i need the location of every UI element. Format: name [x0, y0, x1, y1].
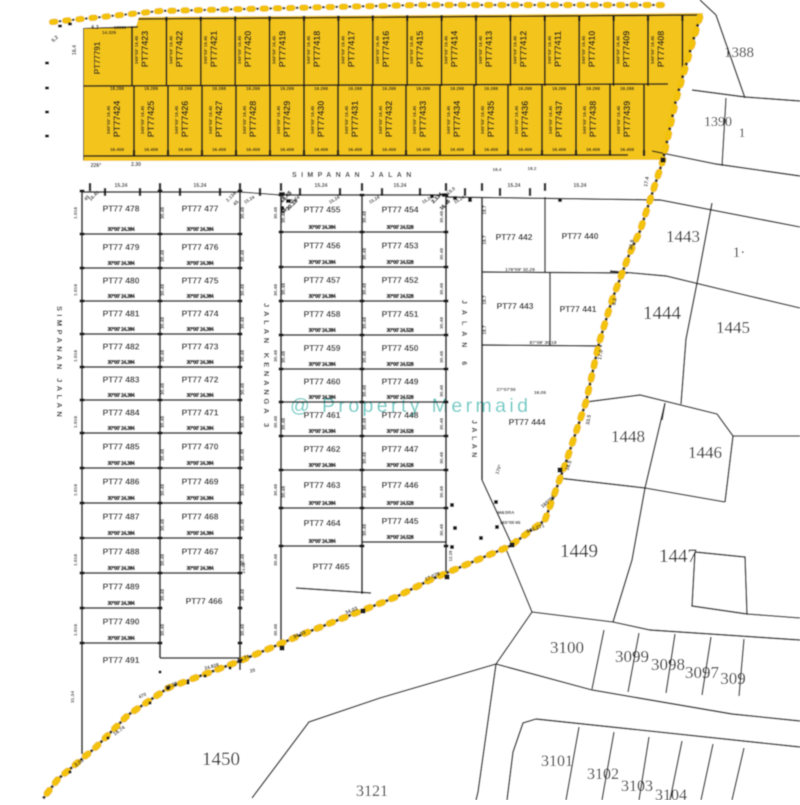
- svg-text:3103: 3103: [621, 778, 653, 795]
- svg-text:16.459: 16.459: [450, 147, 464, 152]
- svg-text:PT77 450: PT77 450: [382, 343, 419, 353]
- svg-text:16.459: 16.459: [314, 147, 328, 152]
- svg-text:PT77 473: PT77 473: [182, 342, 219, 352]
- svg-text:30.48: 30.48: [362, 248, 368, 260]
- svg-text:349°59' 16.45: 349°59' 16.45: [616, 35, 621, 64]
- svg-text:16.459: 16.459: [382, 147, 396, 152]
- svg-text:18.288: 18.288: [348, 86, 362, 91]
- svg-text:PT77436: PT77436: [520, 101, 530, 138]
- svg-text:PT77426: PT77426: [180, 101, 190, 138]
- svg-text:30.48: 30.48: [240, 449, 246, 461]
- svg-text:PT77411: PT77411: [553, 31, 563, 67]
- svg-text:PT77 476: PT77 476: [182, 242, 219, 252]
- svg-text:SIMPANAN JALAN: SIMPANAN JALAN: [292, 172, 416, 179]
- svg-text:30.48: 30.48: [240, 250, 246, 262]
- svg-text:18.288: 18.288: [450, 86, 464, 91]
- svg-text:30.48: 30.48: [160, 449, 166, 461]
- svg-text:30°00' 24.384: 30°00' 24.384: [107, 227, 135, 233]
- svg-text:30°00' 24.384: 30°00' 24.384: [186, 566, 214, 572]
- svg-text:30.48: 30.48: [160, 554, 166, 566]
- svg-text:PT77 465: PT77 465: [313, 562, 350, 572]
- svg-text:1447: 1447: [659, 546, 697, 567]
- svg-text:18.288: 18.288: [620, 86, 634, 91]
- svg-text:349°59' 16.45: 349°59' 16.45: [174, 105, 179, 134]
- svg-text:16.459: 16.459: [518, 147, 532, 152]
- svg-text:16.459: 16.459: [416, 147, 430, 152]
- svg-text:PT77 489: PT77 489: [103, 582, 140, 592]
- svg-text:349°59' 16.45: 349°59' 16.45: [344, 105, 349, 134]
- svg-text:15.24: 15.24: [394, 183, 407, 189]
- svg-text:PT77428: PT77428: [248, 101, 258, 138]
- svg-text:30.48: 30.48: [273, 284, 279, 296]
- svg-text:18.288: 18.288: [212, 86, 226, 91]
- svg-text:16.05: 16.05: [534, 390, 546, 396]
- svg-text:30.48: 30.48: [160, 284, 166, 296]
- svg-text:1.016: 1.016: [73, 484, 79, 496]
- svg-text:349°59' 16.45: 349°59' 16.45: [650, 35, 655, 64]
- svg-text:30.48: 30.48: [281, 351, 287, 363]
- svg-text:30.48: 30.48: [160, 519, 166, 531]
- svg-text:30.48: 30.48: [439, 351, 445, 363]
- svg-text:18.288: 18.288: [144, 86, 158, 91]
- svg-text:30.48: 30.48: [362, 452, 368, 464]
- svg-text:1446: 1446: [688, 443, 722, 462]
- svg-text:30.48: 30.48: [439, 418, 445, 430]
- svg-text:349°59' 16.45: 349°59' 16.45: [514, 105, 519, 134]
- svg-text:PT77419: PT77419: [278, 31, 288, 68]
- svg-text:3097: 3097: [685, 663, 720, 682]
- svg-text:PT77 478: PT77 478: [103, 204, 140, 214]
- svg-text:PT77412: PT77412: [518, 31, 528, 68]
- svg-text:18.288: 18.288: [518, 86, 532, 91]
- svg-text:30°00' 24.384: 30°00' 24.384: [107, 294, 135, 300]
- svg-text:30°00' 24.384: 30°00' 24.384: [107, 461, 135, 467]
- svg-text:30°00' 24.528: 30°00' 24.528: [386, 225, 414, 231]
- svg-text:PT77 463: PT77 463: [304, 480, 341, 490]
- svg-text:349°59' 16.45: 349°59' 16.45: [582, 105, 587, 134]
- svg-text:30.48: 30.48: [273, 350, 279, 362]
- svg-text:27°07'30: 27°07'30: [496, 387, 515, 393]
- svg-text:PT77 451: PT77 451: [382, 309, 419, 319]
- svg-text:PT77429: PT77429: [282, 101, 292, 138]
- svg-text:30.48: 30.48: [160, 589, 166, 601]
- svg-text:30.48: 30.48: [439, 385, 445, 397]
- svg-text:16.459: 16.459: [484, 147, 498, 152]
- svg-text:1.016: 1.016: [73, 284, 79, 296]
- svg-text:PT77 449: PT77 449: [382, 377, 419, 387]
- svg-text:18.2: 18.2: [528, 166, 537, 171]
- svg-text:PT77418: PT77418: [312, 31, 322, 68]
- svg-text:16.459: 16.459: [280, 147, 294, 152]
- svg-text:15.24: 15.24: [115, 183, 128, 189]
- svg-text:PT77 459: PT77 459: [304, 343, 341, 353]
- svg-text:PT77 461: PT77 461: [304, 410, 341, 420]
- svg-text:349°59' 16.45: 349°59' 16.45: [140, 105, 145, 134]
- svg-text:87°09' 30.18: 87°09' 30.18: [529, 340, 556, 346]
- svg-text:PT77791: PT77791: [93, 41, 102, 74]
- svg-text:349°59' 16.45: 349°59' 16.45: [444, 35, 449, 64]
- svg-text:PT77 452: PT77 452: [382, 275, 419, 285]
- svg-text:PT77410: PT77410: [587, 31, 597, 68]
- svg-text:15.24: 15.24: [315, 183, 328, 189]
- svg-text:30.48: 30.48: [439, 452, 445, 464]
- svg-text:30.48: 30.48: [240, 317, 246, 329]
- svg-text:PT77 491: PT77 491: [103, 655, 140, 665]
- svg-text:16.459: 16.459: [178, 147, 192, 152]
- svg-text:PT77 474: PT77 474: [182, 309, 219, 319]
- svg-text:PT77 447: PT77 447: [382, 444, 419, 454]
- svg-text:16.459: 16.459: [110, 147, 124, 152]
- svg-text:PT77425: PT77425: [146, 101, 156, 138]
- svg-text:18.288: 18.288: [246, 86, 260, 91]
- svg-text:349°59' 16.45: 349°59' 16.45: [272, 35, 277, 64]
- svg-text:349°59' 16.45: 349°59' 16.45: [378, 105, 383, 134]
- svg-text:309: 309: [720, 669, 746, 688]
- svg-text:1·: 1·: [733, 245, 746, 261]
- svg-text:1388: 1388: [724, 45, 754, 61]
- svg-text:18.7: 18.7: [482, 295, 488, 305]
- svg-text:30°00' 24.528: 30°00' 24.528: [386, 463, 414, 469]
- svg-text:30°00' 24.384: 30°00' 24.384: [107, 601, 135, 607]
- svg-text:30.48: 30.48: [240, 624, 246, 636]
- svg-text:18.288: 18.288: [416, 86, 430, 91]
- svg-text:PT77 466: PT77 466: [186, 596, 223, 606]
- svg-text:349°59' 16.45: 349°59' 16.45: [547, 35, 552, 64]
- svg-text:3100: 3100: [550, 638, 584, 657]
- svg-text:30°00' 24.528: 30°00' 24.528: [386, 501, 414, 507]
- svg-text:30°00' 24.528: 30°00' 24.528: [386, 260, 414, 266]
- svg-text:30°00' 24.384: 30°00' 24.384: [107, 531, 135, 537]
- svg-text:3098: 3098: [651, 655, 685, 674]
- svg-text:1390: 1390: [704, 115, 732, 130]
- svg-text:30.48: 30.48: [273, 554, 279, 566]
- svg-text:30°00' 24.384: 30°00' 24.384: [186, 393, 214, 399]
- svg-text:PT77 475: PT77 475: [182, 276, 219, 286]
- svg-text:PT77 485: PT77 485: [103, 442, 140, 452]
- svg-text:349°59' 16.45: 349°59' 16.45: [616, 105, 621, 134]
- svg-text:PT77433: PT77433: [418, 101, 428, 138]
- svg-text:30°00' 24.528: 30°00' 24.528: [386, 429, 414, 435]
- svg-text:PT77 490: PT77 490: [103, 617, 140, 627]
- svg-text:30.48: 30.48: [160, 350, 166, 362]
- svg-text:PT77414: PT77414: [450, 31, 460, 68]
- svg-text:349°59' 16.45: 349°59' 16.45: [203, 35, 208, 64]
- svg-text:30°00' 24.384: 30°00' 24.384: [107, 327, 135, 333]
- svg-text:16.4: 16.4: [72, 45, 78, 55]
- svg-text:30.48: 30.48: [362, 351, 368, 363]
- svg-text:PT77413: PT77413: [484, 31, 494, 68]
- svg-text:PT77 457: PT77 457: [304, 275, 341, 285]
- svg-text:30.48: 30.48: [362, 418, 368, 430]
- svg-text:PT77 470: PT77 470: [182, 442, 219, 452]
- svg-text:30.48: 30.48: [160, 317, 166, 329]
- svg-text:PT77439: PT77439: [622, 101, 632, 138]
- svg-text:30°00' 24.384: 30°00' 24.384: [186, 496, 214, 502]
- svg-text:30°00' 24.384: 30°00' 24.384: [107, 496, 135, 502]
- svg-text:15.24: 15.24: [508, 183, 521, 189]
- svg-text:16.459: 16.459: [212, 147, 226, 152]
- svg-text:18.7: 18.7: [482, 235, 488, 245]
- svg-text:30.48: 30.48: [160, 484, 166, 496]
- svg-text:30.48: 30.48: [439, 211, 445, 223]
- svg-text:PT77437: PT77437: [554, 101, 564, 138]
- svg-text:30.48: 30.48: [240, 589, 246, 601]
- svg-text:PT77415: PT77415: [415, 31, 425, 68]
- svg-text:PT77420: PT77420: [243, 31, 253, 68]
- svg-text:349°59' 16.45: 349°59' 16.45: [478, 35, 483, 64]
- svg-text:30.48: 30.48: [160, 624, 166, 636]
- svg-text:1443: 1443: [666, 227, 700, 246]
- svg-text:30.48: 30.48: [362, 385, 368, 397]
- svg-text:PT77416: PT77416: [381, 31, 391, 68]
- svg-text:3121: 3121: [356, 783, 388, 800]
- svg-text:18.288: 18.288: [110, 86, 124, 91]
- svg-text:PT77 484: PT77 484: [103, 408, 140, 418]
- svg-text:3099: 3099: [615, 647, 649, 666]
- svg-text:30.48: 30.48: [273, 624, 279, 636]
- svg-text:30°00' 24.528: 30°00' 24.528: [386, 535, 414, 541]
- svg-text:30.48: 30.48: [362, 211, 368, 223]
- svg-text:30°00' 24.384: 30°00' 24.384: [107, 566, 135, 572]
- svg-text:30°00' 24.384: 30°00' 24.384: [308, 328, 336, 334]
- svg-text:M&SRA: M&SRA: [498, 510, 516, 515]
- svg-text:PT77435: PT77435: [486, 101, 496, 138]
- svg-text:16.4: 16.4: [493, 167, 502, 172]
- svg-text:30.48: 30.48: [273, 484, 279, 496]
- svg-text:30°00' 24.384: 30°00' 24.384: [186, 461, 214, 467]
- svg-text:PT77 454: PT77 454: [382, 205, 419, 215]
- svg-text:18.288: 18.288: [178, 86, 192, 91]
- svg-text:30°00' 24.384: 30°00' 24.384: [186, 294, 214, 300]
- svg-text:30°00' 24.384: 30°00' 24.384: [186, 531, 214, 537]
- svg-text:349°59' 16.45: 349°59' 16.45: [512, 35, 517, 64]
- svg-text:PT77 440: PT77 440: [562, 231, 599, 241]
- svg-text:18.288: 18.288: [586, 86, 600, 91]
- svg-text:PT77 477: PT77 477: [182, 204, 219, 214]
- svg-text:PT77 481: PT77 481: [103, 309, 140, 319]
- svg-text:PT77 487: PT77 487: [103, 512, 140, 522]
- svg-text:PT77 472: PT77 472: [182, 375, 219, 385]
- svg-text:PT77 443: PT77 443: [497, 301, 534, 311]
- svg-text:15.24: 15.24: [194, 183, 207, 189]
- svg-text:1.016: 1.016: [73, 554, 79, 566]
- svg-text:30°00' 24.384: 30°00' 24.384: [308, 395, 336, 401]
- svg-text:PT77 448: PT77 448: [382, 410, 419, 420]
- svg-text:349°59' 16.45: 349°59' 16.45: [276, 105, 281, 134]
- svg-text:PT77417: PT77417: [346, 31, 356, 68]
- svg-text:30.48: 30.48: [439, 486, 445, 498]
- svg-text:349°59' 16.45: 349°59' 16.45: [237, 35, 242, 64]
- svg-text:PT77427: PT77427: [214, 101, 224, 138]
- svg-text:30.48: 30.48: [160, 383, 166, 395]
- svg-text:30°00' 24.528: 30°00' 24.528: [386, 294, 414, 300]
- svg-text:349°59' 16.45: 349°59' 16.45: [208, 105, 213, 134]
- svg-text:15.24: 15.24: [574, 183, 587, 189]
- svg-text:PT77421: PT77421: [209, 31, 219, 68]
- svg-text:30.48: 30.48: [281, 486, 287, 498]
- svg-text:24.03: 24.03: [241, 562, 246, 574]
- svg-text:PT77 442: PT77 442: [496, 232, 533, 242]
- svg-text:6.2: 6.2: [91, 25, 98, 31]
- svg-text:PT77 444: PT77 444: [509, 417, 546, 427]
- svg-text:30°00' 24.528: 30°00' 24.528: [386, 395, 414, 401]
- svg-text:349°59' 16.45: 349°59' 16.45: [106, 105, 111, 134]
- svg-text:16.459: 16.459: [348, 147, 362, 152]
- svg-text:1448: 1448: [611, 427, 645, 446]
- svg-text:30.48: 30.48: [240, 207, 246, 219]
- svg-text:1450: 1450: [202, 749, 240, 770]
- svg-text:16.459: 16.459: [620, 147, 634, 152]
- svg-text:30°00' 24.528: 30°00' 24.528: [386, 362, 414, 368]
- svg-text:PT77423: PT77423: [140, 31, 150, 68]
- svg-text:PT77 460: PT77 460: [304, 377, 341, 387]
- svg-text:1: 1: [739, 125, 746, 140]
- svg-text:30°00' 24.384: 30°00' 24.384: [107, 261, 135, 267]
- svg-text:16.459: 16.459: [144, 147, 158, 152]
- svg-text:349°59' 16.45: 349°59' 16.45: [446, 105, 451, 134]
- svg-text:PT77424: PT77424: [112, 101, 122, 138]
- svg-text:30.48: 30.48: [160, 207, 166, 219]
- svg-text:30°00' 24.384: 30°00' 24.384: [308, 294, 336, 300]
- svg-text:349°59' 16.45: 349°59' 16.45: [168, 35, 173, 64]
- svg-text:JALAN: JALAN: [470, 420, 477, 461]
- svg-text:30.48: 30.48: [160, 250, 166, 262]
- svg-text:30°00' 24.384: 30°00' 24.384: [186, 426, 214, 432]
- svg-text:30.48: 30.48: [362, 524, 368, 536]
- svg-text:16.459: 16.459: [552, 147, 566, 152]
- svg-text:30.48: 30.48: [240, 284, 246, 296]
- svg-text:30°00' 24.384: 30°00' 24.384: [107, 426, 135, 432]
- svg-text:1.016: 1.016: [73, 207, 79, 219]
- svg-text:349°59' 16.45: 349°59' 16.45: [581, 35, 586, 64]
- svg-text:PT77438: PT77438: [588, 101, 598, 138]
- svg-text:PT77 458: PT77 458: [304, 309, 341, 319]
- svg-text:PT77 469: PT77 469: [182, 477, 219, 487]
- svg-text:30°00' 24.528: 30°00' 24.528: [386, 328, 414, 334]
- svg-text:PT77 464: PT77 464: [304, 518, 341, 528]
- svg-text:PT77 455: PT77 455: [304, 205, 341, 215]
- svg-text:3104: 3104: [655, 787, 687, 800]
- svg-text:3101: 3101: [541, 753, 573, 770]
- svg-text:349°59' 16.45: 349°59' 16.45: [409, 35, 414, 64]
- svg-text:31.34: 31.34: [70, 691, 76, 703]
- svg-text:PT77 488: PT77 488: [103, 547, 140, 557]
- svg-text:30°00' 24.384: 30°00' 24.384: [308, 539, 336, 545]
- svg-text:349°59' 16.45: 349°59' 16.45: [412, 105, 417, 134]
- svg-text:1.016: 1.016: [73, 416, 79, 428]
- svg-text:PT77 453: PT77 453: [382, 241, 419, 251]
- svg-text:PT77 467: PT77 467: [182, 547, 219, 557]
- svg-text:30°00' 24.384: 30°00' 24.384: [107, 360, 135, 366]
- svg-text:226°: 226°: [91, 163, 102, 169]
- svg-text:30.48: 30.48: [439, 524, 445, 536]
- svg-text:JALAN 6: JALAN 6: [460, 300, 467, 371]
- svg-text:30.48: 30.48: [439, 317, 445, 329]
- svg-text:349°59' 16.45: 349°59' 16.45: [310, 105, 315, 134]
- svg-text:PT77 486: PT77 486: [103, 477, 140, 487]
- svg-text:30.48: 30.48: [240, 416, 246, 428]
- svg-text:8.2: 8.2: [611, 298, 618, 306]
- svg-text:30.48: 30.48: [362, 317, 368, 329]
- svg-text:PT77 471: PT77 471: [182, 408, 219, 418]
- svg-text:30°00' 24.384: 30°00' 24.384: [186, 227, 214, 233]
- svg-text:PT77 441: PT77 441: [560, 304, 597, 314]
- svg-text:PT77 445: PT77 445: [382, 516, 419, 526]
- svg-text:10000: 10000: [114, 25, 127, 30]
- svg-text:18.7: 18.7: [482, 205, 488, 215]
- svg-text:30°00' 24.384: 30°00' 24.384: [308, 225, 336, 231]
- svg-text:PT77 456: PT77 456: [304, 241, 341, 251]
- svg-text:30°00' 24.384: 30°00' 24.384: [186, 327, 214, 333]
- svg-text:3102: 3102: [587, 766, 619, 783]
- svg-text:14.326: 14.326: [102, 30, 116, 35]
- svg-text:30.48: 30.48: [160, 416, 166, 428]
- svg-text:PT77432: PT77432: [384, 101, 394, 138]
- svg-text:349°59' 16.45: 349°59' 16.45: [480, 105, 485, 134]
- svg-text:30.48: 30.48: [281, 418, 287, 430]
- svg-text:30.48: 30.48: [439, 283, 445, 295]
- svg-text:30.48: 30.48: [362, 486, 368, 498]
- svg-text:30°00' 24.384: 30°00' 24.384: [308, 362, 336, 368]
- svg-text:1444: 1444: [643, 303, 682, 324]
- svg-text:JALAN KENANGA 3: JALAN KENANGA 3: [262, 303, 271, 431]
- svg-text:30°00' 24.384: 30°00' 24.384: [308, 429, 336, 435]
- svg-text:16.459: 16.459: [586, 147, 600, 152]
- svg-text:PT77 480: PT77 480: [103, 276, 140, 286]
- svg-text:165°05'45: 165°05'45: [500, 520, 521, 525]
- svg-text:30.48: 30.48: [240, 350, 246, 362]
- svg-text:18.7: 18.7: [482, 325, 488, 335]
- svg-text:30.48: 30.48: [273, 207, 279, 219]
- svg-text:30°00' 24.384: 30°00' 24.384: [308, 501, 336, 507]
- svg-text:18.288: 18.288: [552, 86, 566, 91]
- svg-text:30°00' 24.384: 30°00' 24.384: [308, 463, 336, 469]
- svg-text:30°00' 24.384: 30°00' 24.384: [186, 261, 214, 267]
- svg-text:PT77 462: PT77 462: [304, 444, 341, 454]
- svg-text:PT77 479: PT77 479: [103, 242, 140, 252]
- svg-text:1449: 1449: [560, 541, 598, 562]
- svg-text:PT77 483: PT77 483: [103, 375, 140, 385]
- svg-text:30°00' 24.384: 30°00' 24.384: [107, 393, 135, 399]
- svg-text:18.288: 18.288: [314, 86, 328, 91]
- svg-text:30.48: 30.48: [240, 484, 246, 496]
- svg-text:PT77431: PT77431: [350, 101, 360, 138]
- svg-text:16.459: 16.459: [246, 147, 260, 152]
- svg-text:PT77409: PT77409: [622, 31, 632, 68]
- svg-text:18.288: 18.288: [382, 86, 396, 91]
- svg-text:1445: 1445: [716, 318, 750, 337]
- svg-text:349°59' 16.45: 349°59' 16.45: [548, 105, 553, 134]
- svg-text:1.016: 1.016: [73, 624, 79, 636]
- svg-text:30°00' 24.384: 30°00' 24.384: [308, 260, 336, 266]
- svg-text:349°59' 16.45: 349°59' 16.45: [134, 35, 139, 64]
- svg-text:30.48: 30.48: [362, 283, 368, 295]
- svg-text:349°59' 16.45: 349°59' 16.45: [306, 35, 311, 64]
- svg-text:30.48: 30.48: [281, 283, 287, 295]
- svg-text:PT77434: PT77434: [452, 101, 462, 138]
- svg-text:30.48: 30.48: [439, 248, 445, 260]
- svg-text:30°00' 24.384: 30°00' 24.384: [186, 360, 214, 366]
- svg-text:PT77430: PT77430: [316, 101, 326, 138]
- svg-text:18.288: 18.288: [280, 86, 294, 91]
- svg-text:SIMPANAN JALAN: SIMPANAN JALAN: [55, 306, 64, 420]
- svg-text:30.48: 30.48: [273, 416, 279, 428]
- svg-text:349°59' 16.45: 349°59' 16.45: [340, 35, 345, 64]
- svg-text:18.288: 18.288: [484, 86, 498, 91]
- svg-text:1.016: 1.016: [73, 350, 79, 362]
- svg-text:PT77 468: PT77 468: [182, 512, 219, 522]
- svg-text:30°00' 24.384: 30°00' 24.384: [107, 636, 135, 642]
